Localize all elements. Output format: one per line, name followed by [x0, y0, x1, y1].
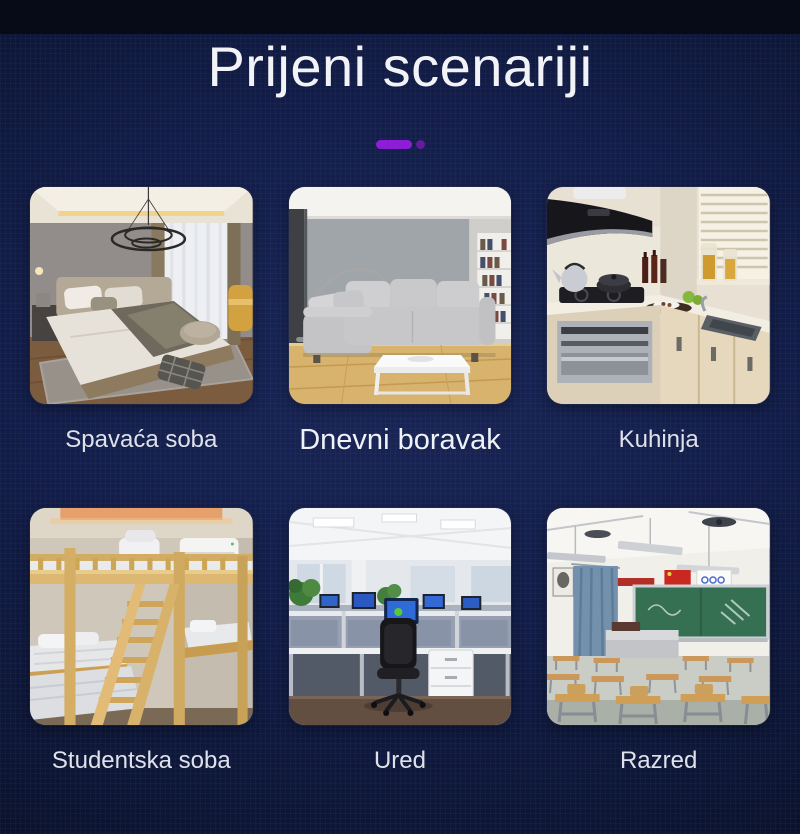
scenario-card-living-room: Dnevni boravak: [289, 187, 512, 458]
living-room-photo: [289, 187, 512, 404]
scenario-label-kitchen: Kuhinja: [547, 422, 770, 458]
office-photo: [289, 508, 512, 725]
poster: Prijeni scenariji: [0, 34, 800, 834]
page-title: Prijeni scenariji: [0, 34, 800, 99]
accent-dash-icon: [376, 140, 412, 149]
scenario-label-living-room: Dnevni boravak: [289, 422, 512, 458]
scenario-grid: Spavaća soba: [0, 187, 800, 779]
scenario-label-student-room: Studentska soba: [30, 743, 253, 779]
scenario-card-student-room: Studentska soba: [30, 508, 253, 779]
scenario-label-classroom: Razred: [547, 743, 770, 779]
scenario-label-office: Ured: [289, 743, 512, 779]
scenario-label-bedroom: Spavaća soba: [30, 422, 253, 458]
bedroom-photo: [30, 187, 253, 404]
classroom-photo: [547, 508, 770, 725]
title-accent: [0, 139, 800, 149]
kitchen-photo: [547, 187, 770, 404]
scenario-card-bedroom: Spavaća soba: [30, 187, 253, 458]
accent-dot-icon: [416, 140, 425, 149]
scenario-card-classroom: Razred: [547, 508, 770, 779]
scenario-card-kitchen: Kuhinja: [547, 187, 770, 458]
student-room-photo: [30, 508, 253, 725]
scenario-card-office: Ured: [289, 508, 512, 779]
